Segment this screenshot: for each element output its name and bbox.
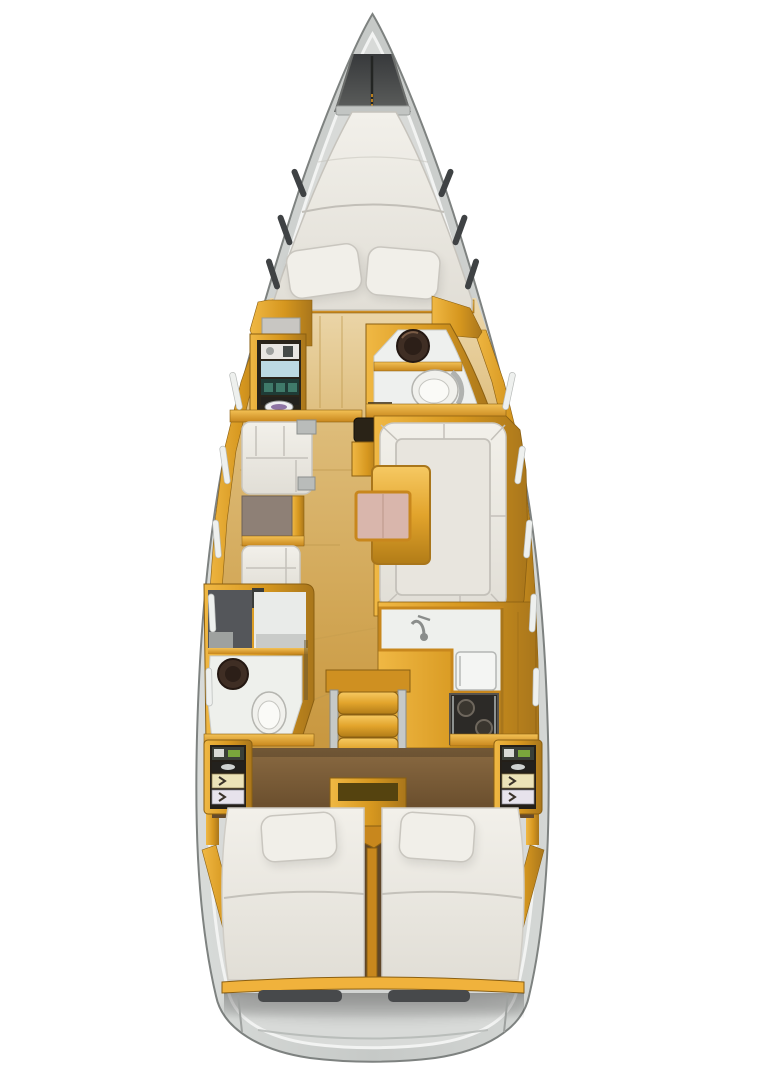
seat-bracket <box>298 477 315 490</box>
v-berth-pillow-port <box>285 242 365 303</box>
sink-drain <box>404 337 422 355</box>
head-shelf <box>374 362 462 371</box>
boat-floorplan <box>0 0 762 1080</box>
seat-bracket <box>297 420 316 434</box>
chart-table <box>242 496 292 536</box>
shelf-item <box>518 750 530 757</box>
shower-panel <box>209 632 233 648</box>
berth-pillow <box>260 811 339 867</box>
anchor-locker <box>334 54 411 115</box>
wardrobe-shelf-blue <box>261 361 299 377</box>
locker-drawer <box>212 774 244 788</box>
shower-seat <box>256 634 306 648</box>
cabinet-shelf-gap <box>262 318 300 334</box>
shelf-item <box>504 749 514 757</box>
stove-burner <box>476 720 492 736</box>
shelf-item <box>264 383 273 392</box>
pillow <box>399 811 476 862</box>
shelf-item <box>214 749 224 757</box>
floorplan-canvas <box>0 0 762 1080</box>
shelf-item <box>283 346 293 357</box>
v-berth-pillow-starboard <box>365 246 443 303</box>
toilet-seat <box>419 379 449 403</box>
starboard-u-settee <box>356 416 528 616</box>
shelf-item <box>511 764 525 770</box>
v-berth <box>272 112 474 313</box>
stove-burner <box>458 700 474 716</box>
stern-hatch-starboard <box>388 990 470 1002</box>
aft-head <box>204 584 314 744</box>
hull-window <box>533 668 540 706</box>
hull-window <box>206 668 213 706</box>
storage-locker-starboard <box>494 740 542 814</box>
toilet-seat <box>258 701 280 729</box>
pillow <box>365 246 441 300</box>
shelf-item <box>266 347 274 355</box>
pillow <box>285 242 363 300</box>
pillow <box>260 811 337 862</box>
wardrobe <box>250 334 306 416</box>
engine-box-opening <box>338 783 398 801</box>
shelf-item <box>221 764 235 770</box>
locker-drawer <box>502 790 534 804</box>
shelf-item <box>288 383 297 392</box>
stern-hatch-port <box>258 990 342 1002</box>
companionway-header <box>326 670 410 692</box>
shelf-item <box>228 750 240 757</box>
aft-cabin-port <box>222 808 364 980</box>
berth-pillow <box>398 811 477 867</box>
shelf-item <box>276 383 285 392</box>
locker-drawer <box>212 790 244 804</box>
aft-cabin-starboard <box>382 808 524 980</box>
locker-drawer <box>502 774 534 788</box>
storage-locker-port <box>204 740 252 814</box>
basin-item-center <box>271 404 287 410</box>
berth-divider <box>367 848 377 980</box>
galley-fridge <box>456 652 496 690</box>
aft-floor-shadow <box>212 748 534 757</box>
sink-drain <box>225 666 241 682</box>
chart-table-edge <box>242 536 304 546</box>
companionway-step <box>338 715 398 737</box>
bulkhead-port <box>230 410 362 422</box>
companionway-step <box>338 692 398 714</box>
head-divider <box>208 648 308 654</box>
